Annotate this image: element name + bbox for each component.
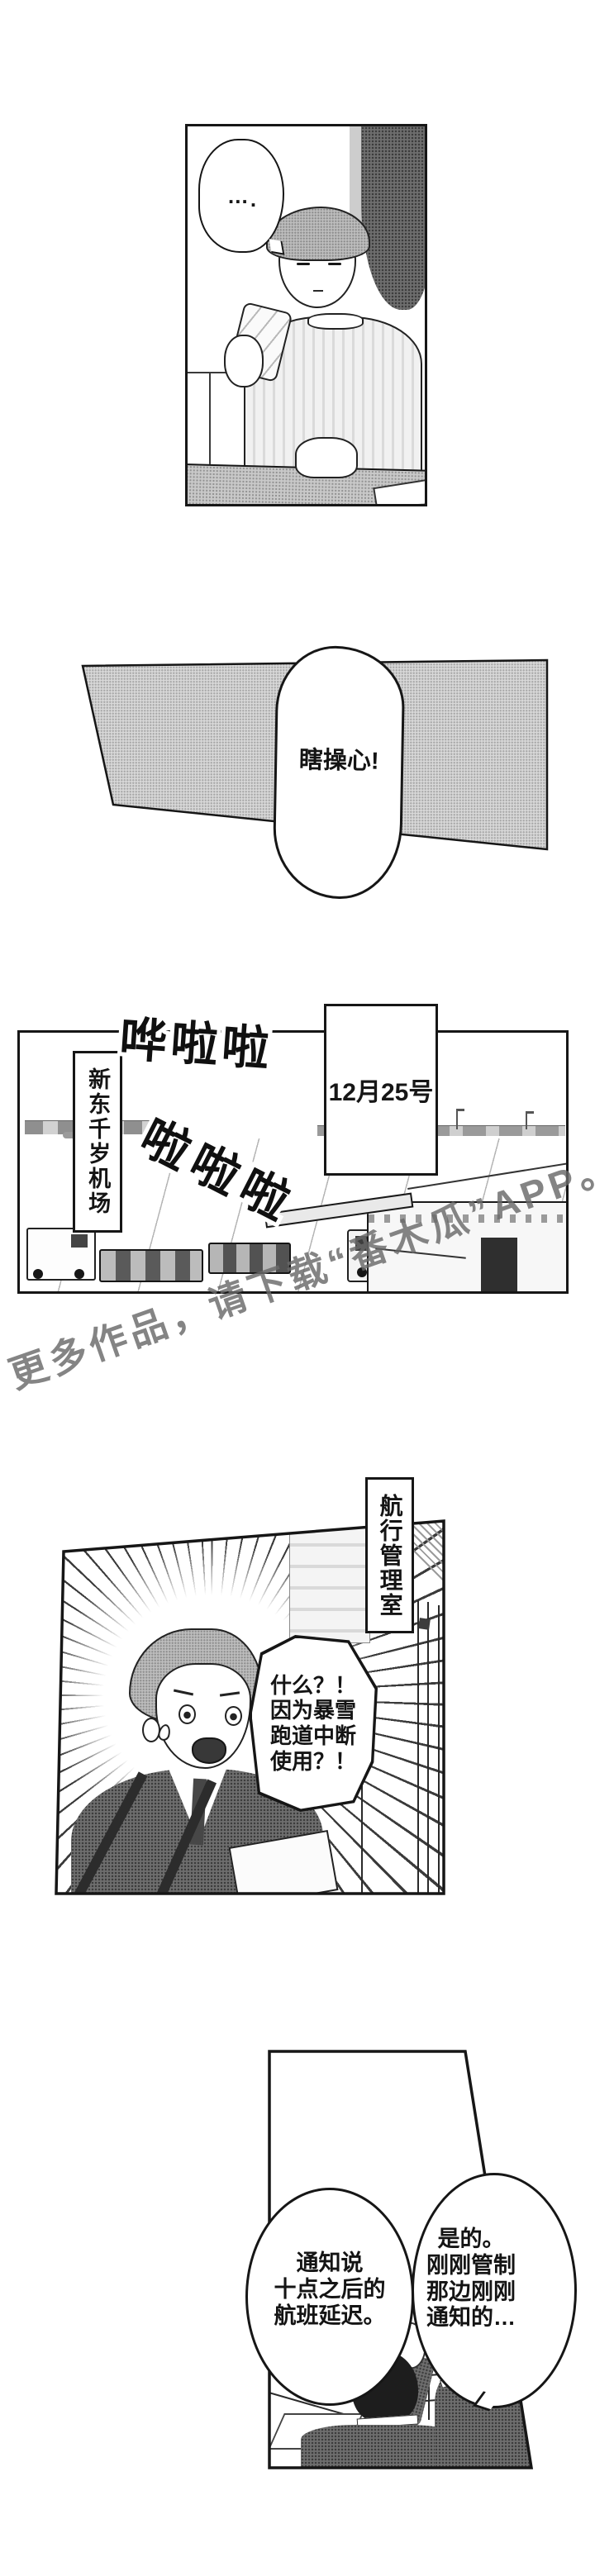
terminal-door: [481, 1238, 517, 1292]
sfx-rumble-top: 哗啦啦 哗啦啦: [117, 1001, 275, 1080]
room-label-text: 航行管理室: [377, 1494, 402, 1618]
truck-cab-window: [71, 1234, 88, 1248]
bubble-what-line-3: 跑道中断: [270, 1723, 356, 1749]
light-pole-3: [526, 1111, 534, 1129]
bubble-what-line-4: 使用？！: [270, 1749, 356, 1775]
door-frame-line-2: [417, 1600, 419, 1894]
sweater-collar: [307, 313, 364, 330]
eye-shocked-right: [225, 1706, 242, 1726]
hand-holding-glass: [224, 335, 264, 387]
mouth-open: [192, 1737, 226, 1764]
location-label-text: 新东千岁机场: [85, 1067, 110, 1216]
bubble-reply: 是的。 刚刚管制 那边刚刚 通知的…: [412, 2173, 577, 2408]
panel-1: … .: [185, 124, 427, 506]
bubble-what-line-2: 因为暴雪: [270, 1698, 356, 1723]
wall-post: [209, 372, 211, 464]
curtain: [361, 124, 427, 310]
bubble-notice-line-1: 通知说: [274, 2250, 386, 2277]
date-caption-text: 12月25号: [329, 1072, 434, 1108]
light-pole-2: [456, 1109, 464, 1129]
bubble-reply-line-4: 通知的…: [426, 2305, 516, 2331]
location-label-box: 新东千岁机场: [73, 1051, 122, 1233]
sfx-rumble-top-fill: 哗啦啦: [117, 1012, 274, 1077]
bubble-reply-line-3: 那边刚刚: [426, 2279, 516, 2306]
date-caption-box: 12月25号: [324, 1004, 438, 1176]
fist-on-table: [295, 437, 358, 478]
bubble-reply-line-2: 刚刚管制: [426, 2253, 516, 2279]
room-label-box: 航行管理室: [365, 1477, 414, 1633]
bubble-silence-tail: [269, 239, 285, 255]
eye-right: [328, 263, 341, 265]
bubble-silence-extra-dot: .: [250, 187, 256, 212]
bubble-what-inner: 什么？！ 因为暴雪 跑道中断 使用？！: [252, 1638, 375, 1809]
door-frame-line-3: [427, 1602, 429, 1894]
bubble-notice-line-2: 十点之后的: [274, 2277, 386, 2303]
bubble-notice-text: 通知说 十点之后的 航班延迟。: [274, 2250, 386, 2330]
shocked-man-ear: [142, 1718, 160, 1742]
bubble-notice: 通知说 十点之后的 航班延迟。: [245, 2188, 414, 2406]
bubble-what-text: 什么？！ 因为暴雪 跑道中断 使用？！: [270, 1673, 356, 1775]
eye-shocked-left: [178, 1704, 196, 1724]
truck-wheel-1: [33, 1269, 43, 1279]
door-frame-line-4: [438, 1605, 440, 1894]
bubble-needless-worry-text: 瞎操心!: [299, 746, 379, 776]
truck-wheel-2: [74, 1269, 84, 1279]
mouth: [313, 290, 323, 292]
baggage-cart-1: [99, 1249, 203, 1282]
bubble-reply-text: 是的。 刚刚管制 那边刚刚 通知的…: [426, 2227, 516, 2331]
manga-page: … . 瞎操心!: [0, 0, 595, 2576]
ceiling-light-fixture: [289, 1524, 370, 1643]
bubble-silence-dots: …: [227, 183, 250, 209]
bubble-silence: … .: [198, 139, 284, 253]
door-sign: [418, 1618, 431, 1630]
bubble-needless-worry: 瞎操心!: [272, 645, 405, 901]
bubble-what-line-1: 什么？！: [270, 1673, 356, 1699]
box-truck: [26, 1228, 96, 1281]
bubble-reply-line-1: 是的。: [426, 2227, 516, 2253]
bubble-notice-line-3: 航班延迟。: [274, 2303, 386, 2330]
eye-left: [297, 263, 310, 265]
